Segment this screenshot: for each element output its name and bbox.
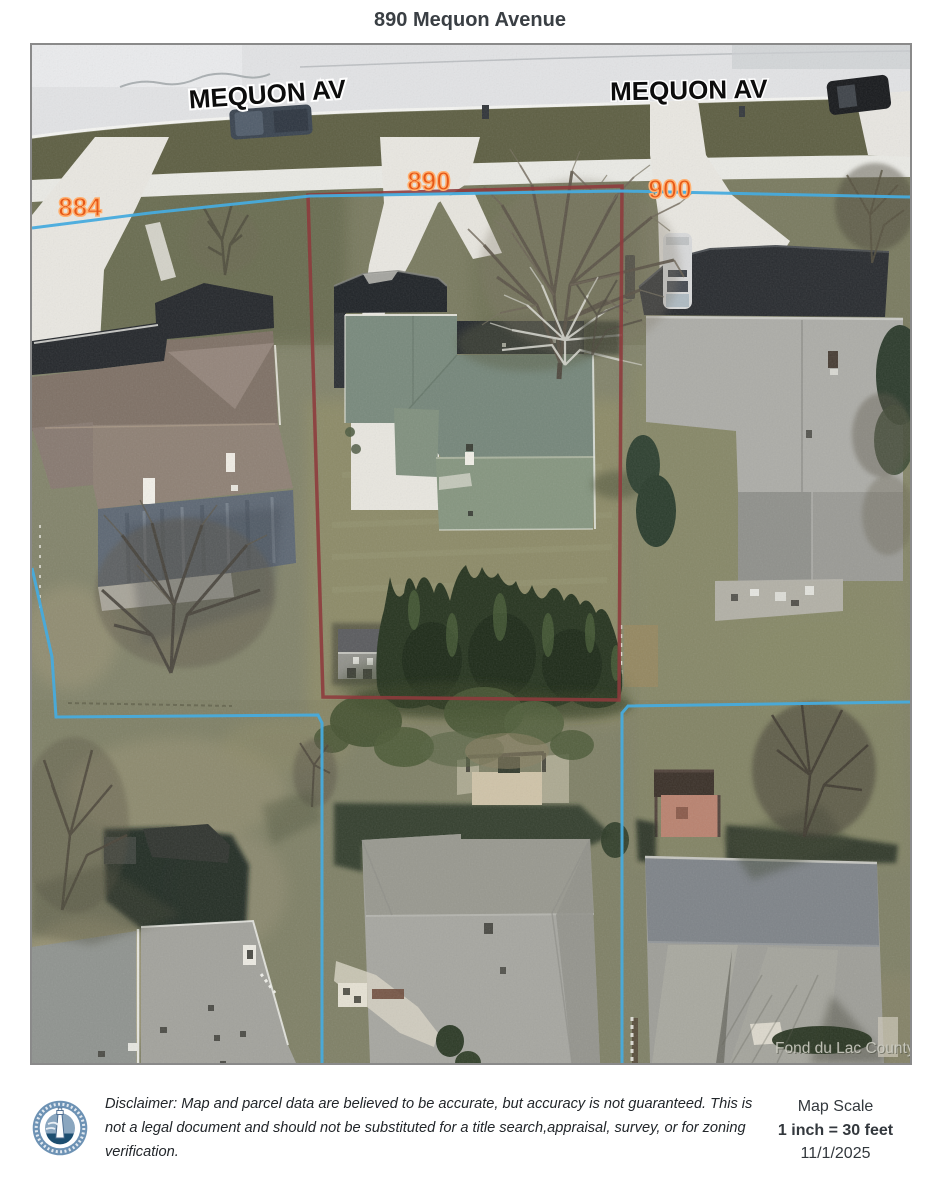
svg-text:Fond du Lac County: Fond du Lac County xyxy=(775,1040,910,1057)
svg-text:900: 900 xyxy=(648,174,691,204)
svg-text:890: 890 xyxy=(407,166,450,196)
svg-text:MEQUON AV: MEQUON AV xyxy=(610,74,769,107)
svg-text:884: 884 xyxy=(58,192,102,222)
